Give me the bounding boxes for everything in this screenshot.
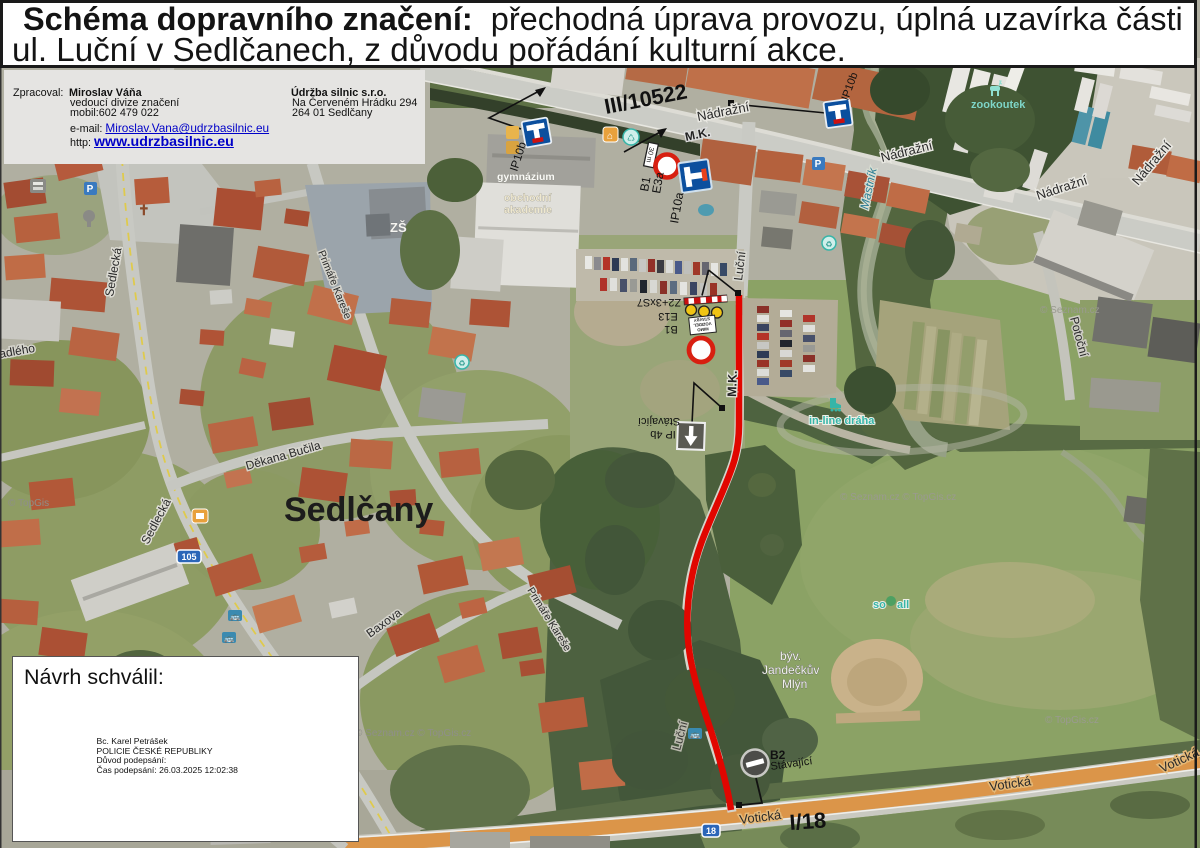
svg-text:zookoutek: zookoutek — [971, 99, 1026, 111]
svg-text:obchodní: obchodní — [504, 192, 552, 204]
svg-text:akademie: akademie — [504, 204, 552, 216]
svg-text:M.K.: M.K. — [725, 370, 740, 397]
svg-text:⌂: ⌂ — [607, 131, 613, 142]
svg-text:♺: ♺ — [627, 133, 635, 143]
svg-text:♻: ♻ — [458, 359, 465, 368]
svg-text:© Seznam.cz © TopGis.cz: © Seznam.cz © TopGis.cz — [355, 728, 471, 739]
svg-text:Jandečkův: Jandečkův — [762, 663, 819, 677]
svg-text:🚌: 🚌 — [690, 730, 700, 739]
svg-text:B1: B1 — [664, 323, 677, 335]
svg-text:so: so — [873, 599, 886, 611]
svg-text:P: P — [815, 159, 822, 170]
svg-text:♻: ♻ — [825, 240, 832, 249]
svg-text:P: P — [87, 184, 94, 195]
svg-text:IP 4b: IP 4b — [650, 428, 676, 440]
svg-text:in-line dráha: in-line dráha — [809, 415, 875, 427]
svg-text:ZŠ: ZŠ — [390, 220, 407, 235]
svg-text:Stávající: Stávající — [638, 415, 680, 427]
svg-text:Mlýn: Mlýn — [782, 677, 807, 691]
svg-text:🚌: 🚌 — [230, 612, 240, 621]
svg-text:© TopGis.cz: © TopGis.cz — [1045, 715, 1099, 726]
svg-text:🚌: 🚌 — [224, 634, 234, 643]
svg-text:Z2+3xS7: Z2+3xS7 — [637, 296, 681, 308]
svg-text:E13: E13 — [658, 310, 678, 322]
svg-text:© Seznam.cz © TopGis.cz: © Seznam.cz © TopGis.cz — [840, 492, 956, 503]
svg-text:Sedlčany: Sedlčany — [284, 491, 433, 529]
svg-text:býv.: býv. — [780, 649, 801, 663]
svg-text:105: 105 — [181, 552, 196, 562]
svg-text:© Seznam.cz: © Seznam.cz — [1040, 305, 1100, 316]
svg-text:✝: ✝ — [138, 202, 150, 218]
svg-text:all: all — [897, 599, 909, 611]
svg-text:I/18: I/18 — [789, 807, 827, 834]
svg-text:© TopGis: © TopGis — [8, 498, 49, 509]
svg-text:18: 18 — [706, 826, 716, 836]
svg-text:gymnázium: gymnázium — [497, 171, 555, 183]
